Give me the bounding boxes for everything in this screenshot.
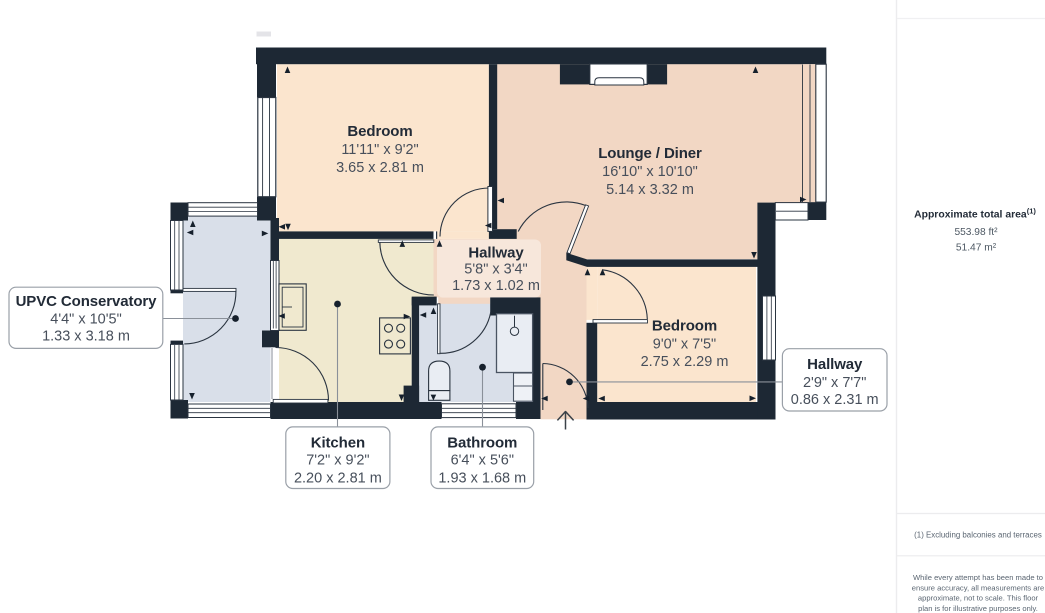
svg-text:2'9" x 7'7": 2'9" x 7'7"	[803, 375, 866, 391]
svg-text:553.98 ft²: 553.98 ft²	[954, 227, 998, 238]
svg-text:4'4" x 10'5": 4'4" x 10'5"	[50, 312, 121, 328]
svg-text:approximate, not to scale. Thi: approximate, not to scale. This floor	[918, 594, 1039, 603]
svg-text:1.93 x 1.68 m: 1.93 x 1.68 m	[438, 470, 526, 486]
svg-text:6'4" x 5'6": 6'4" x 5'6"	[451, 452, 514, 468]
svg-text:Lounge / Diner: Lounge / Diner	[598, 145, 702, 162]
svg-text:5.14 x 3.32 m: 5.14 x 3.32 m	[606, 182, 694, 198]
svg-text:11'11" x 9'2": 11'11" x 9'2"	[341, 142, 418, 158]
svg-text:UPVC Conservatory: UPVC Conservatory	[16, 293, 158, 310]
svg-text:1.33 x 3.18 m: 1.33 x 3.18 m	[42, 328, 130, 344]
svg-text:Bathroom: Bathroom	[447, 434, 517, 451]
svg-text:2.20 x 2.81 m: 2.20 x 2.81 m	[294, 470, 382, 486]
svg-text:5'8" x 3'4": 5'8" x 3'4"	[464, 262, 527, 278]
svg-text:plan is for illustrative purpo: plan is for illustrative purposes only.	[918, 604, 1038, 613]
svg-text:Hallway: Hallway	[807, 356, 863, 373]
svg-text:3.65 x 2.81 m: 3.65 x 2.81 m	[336, 160, 424, 176]
svg-text:Hallway: Hallway	[468, 245, 524, 262]
svg-text:Bedroom: Bedroom	[652, 318, 717, 335]
svg-text:7'2" x 9'2": 7'2" x 9'2"	[306, 452, 369, 468]
svg-text:Approximate total area(1): Approximate total area(1)	[914, 207, 1036, 221]
svg-text:0.86 x 2.31 m: 0.86 x 2.31 m	[791, 392, 879, 408]
svg-text:16'10" x 10'10": 16'10" x 10'10"	[602, 164, 698, 180]
svg-text:51.47 m²: 51.47 m²	[956, 243, 997, 254]
svg-text:ensure accuracy, all measureme: ensure accuracy, all measurements are	[912, 583, 1044, 592]
svg-text:Bedroom: Bedroom	[347, 123, 412, 140]
svg-text:Kitchen: Kitchen	[311, 434, 365, 451]
svg-text:(1) Excluding balconies and te: (1) Excluding balconies and terraces	[914, 531, 1042, 540]
svg-text:While every attempt has been m: While every attempt has been made to	[913, 573, 1043, 582]
svg-text:9'0" x 7'5": 9'0" x 7'5"	[653, 337, 716, 353]
svg-text:2.75 x 2.29 m: 2.75 x 2.29 m	[641, 354, 729, 370]
svg-text:1.73 x 1.02 m: 1.73 x 1.02 m	[452, 278, 540, 294]
